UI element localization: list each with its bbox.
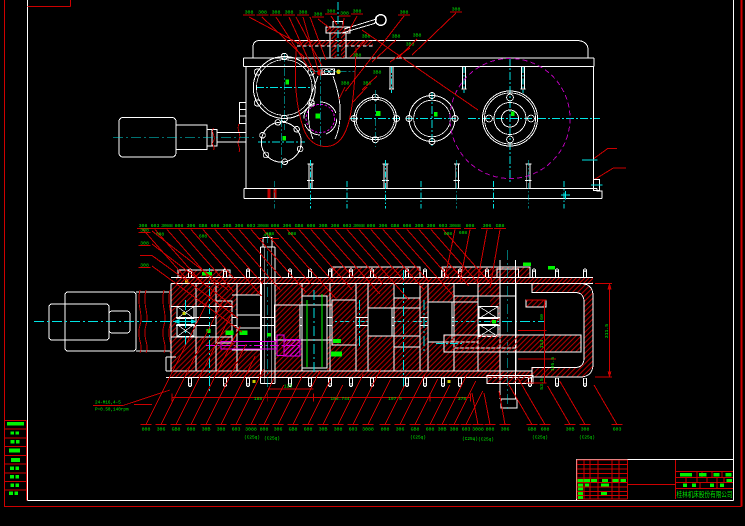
svg-text:(C25q): (C25q) [244,436,260,441]
svg-text:188: 188 [254,396,263,402]
svg-text:3088: 3088 [245,427,257,433]
svg-text:3B8: 3B8 [413,33,422,39]
svg-text:808: 808 [142,427,151,433]
svg-text:603: 603 [462,427,471,433]
svg-text:(C25q): (C25q) [478,438,494,443]
svg-text:197.5: 197.5 [388,396,402,402]
svg-text:GB8: GB8 [411,427,420,433]
svg-text:3B8: 3B8 [373,70,382,76]
svg-text:53.5: 53.5 [539,378,545,390]
svg-text:306: 306 [396,427,405,433]
svg-text:608: 608 [426,427,435,433]
svg-text:123: 123 [284,384,293,390]
svg-text:608: 608 [199,234,208,240]
svg-text:P=0.50,140rpm: P=0.50,140rpm [95,408,129,413]
svg-text:3B8: 3B8 [392,34,401,40]
svg-text:608: 608 [459,230,468,236]
svg-text:桂林机床股份有限公司: 桂林机床股份有限公司 [677,490,733,500]
svg-text:GB8: GB8 [172,427,181,433]
svg-text:(C25q): (C25q) [264,437,280,442]
svg-text:(C25q): (C25q) [462,437,478,442]
svg-text:308: 308 [581,427,590,433]
svg-text:306: 306 [501,427,510,433]
svg-text:(C25q): (C25q) [579,436,595,441]
svg-text:308: 308 [217,427,226,433]
svg-text:188.744: 188.744 [330,396,350,402]
svg-text:608: 608 [266,231,275,237]
svg-text:603: 603 [232,427,241,433]
svg-text:308: 308 [450,427,459,433]
svg-text:608: 608 [444,231,453,237]
svg-text:608: 608 [541,427,550,433]
svg-text:378: 378 [458,396,467,402]
svg-text:306: 306 [157,427,166,433]
svg-text:603: 603 [349,427,358,433]
svg-text:(C25q): (C25q) [410,436,426,441]
svg-text:608: 608 [288,231,297,237]
svg-text:30B: 30B [202,427,211,433]
svg-text:308: 308 [334,427,343,433]
svg-text:3088: 3088 [362,427,374,433]
svg-text:808: 808 [381,427,390,433]
svg-text:30B: 30B [319,427,328,433]
svg-text:311.5: 311.5 [604,324,610,339]
svg-text:3088: 3088 [472,427,484,433]
svg-text:3B8: 3B8 [341,81,350,87]
svg-text:105.5: 105.5 [550,357,556,372]
svg-text:30B: 30B [566,427,575,433]
svg-text:808: 808 [260,427,269,433]
svg-text:608: 608 [187,427,196,433]
svg-text:(C25q): (C25q) [532,436,548,441]
svg-text:603: 603 [613,427,622,433]
svg-text:60: 60 [539,314,545,320]
svg-text:306: 306 [274,427,283,433]
svg-text:608: 608 [304,427,313,433]
svg-text:GB8: GB8 [528,427,537,433]
svg-text:114: 114 [539,340,545,349]
svg-text:24-M16,4-5: 24-M16,4-5 [95,401,121,406]
svg-text:30B: 30B [438,427,447,433]
svg-text:GB8: GB8 [289,427,298,433]
svg-text:808: 808 [486,427,495,433]
